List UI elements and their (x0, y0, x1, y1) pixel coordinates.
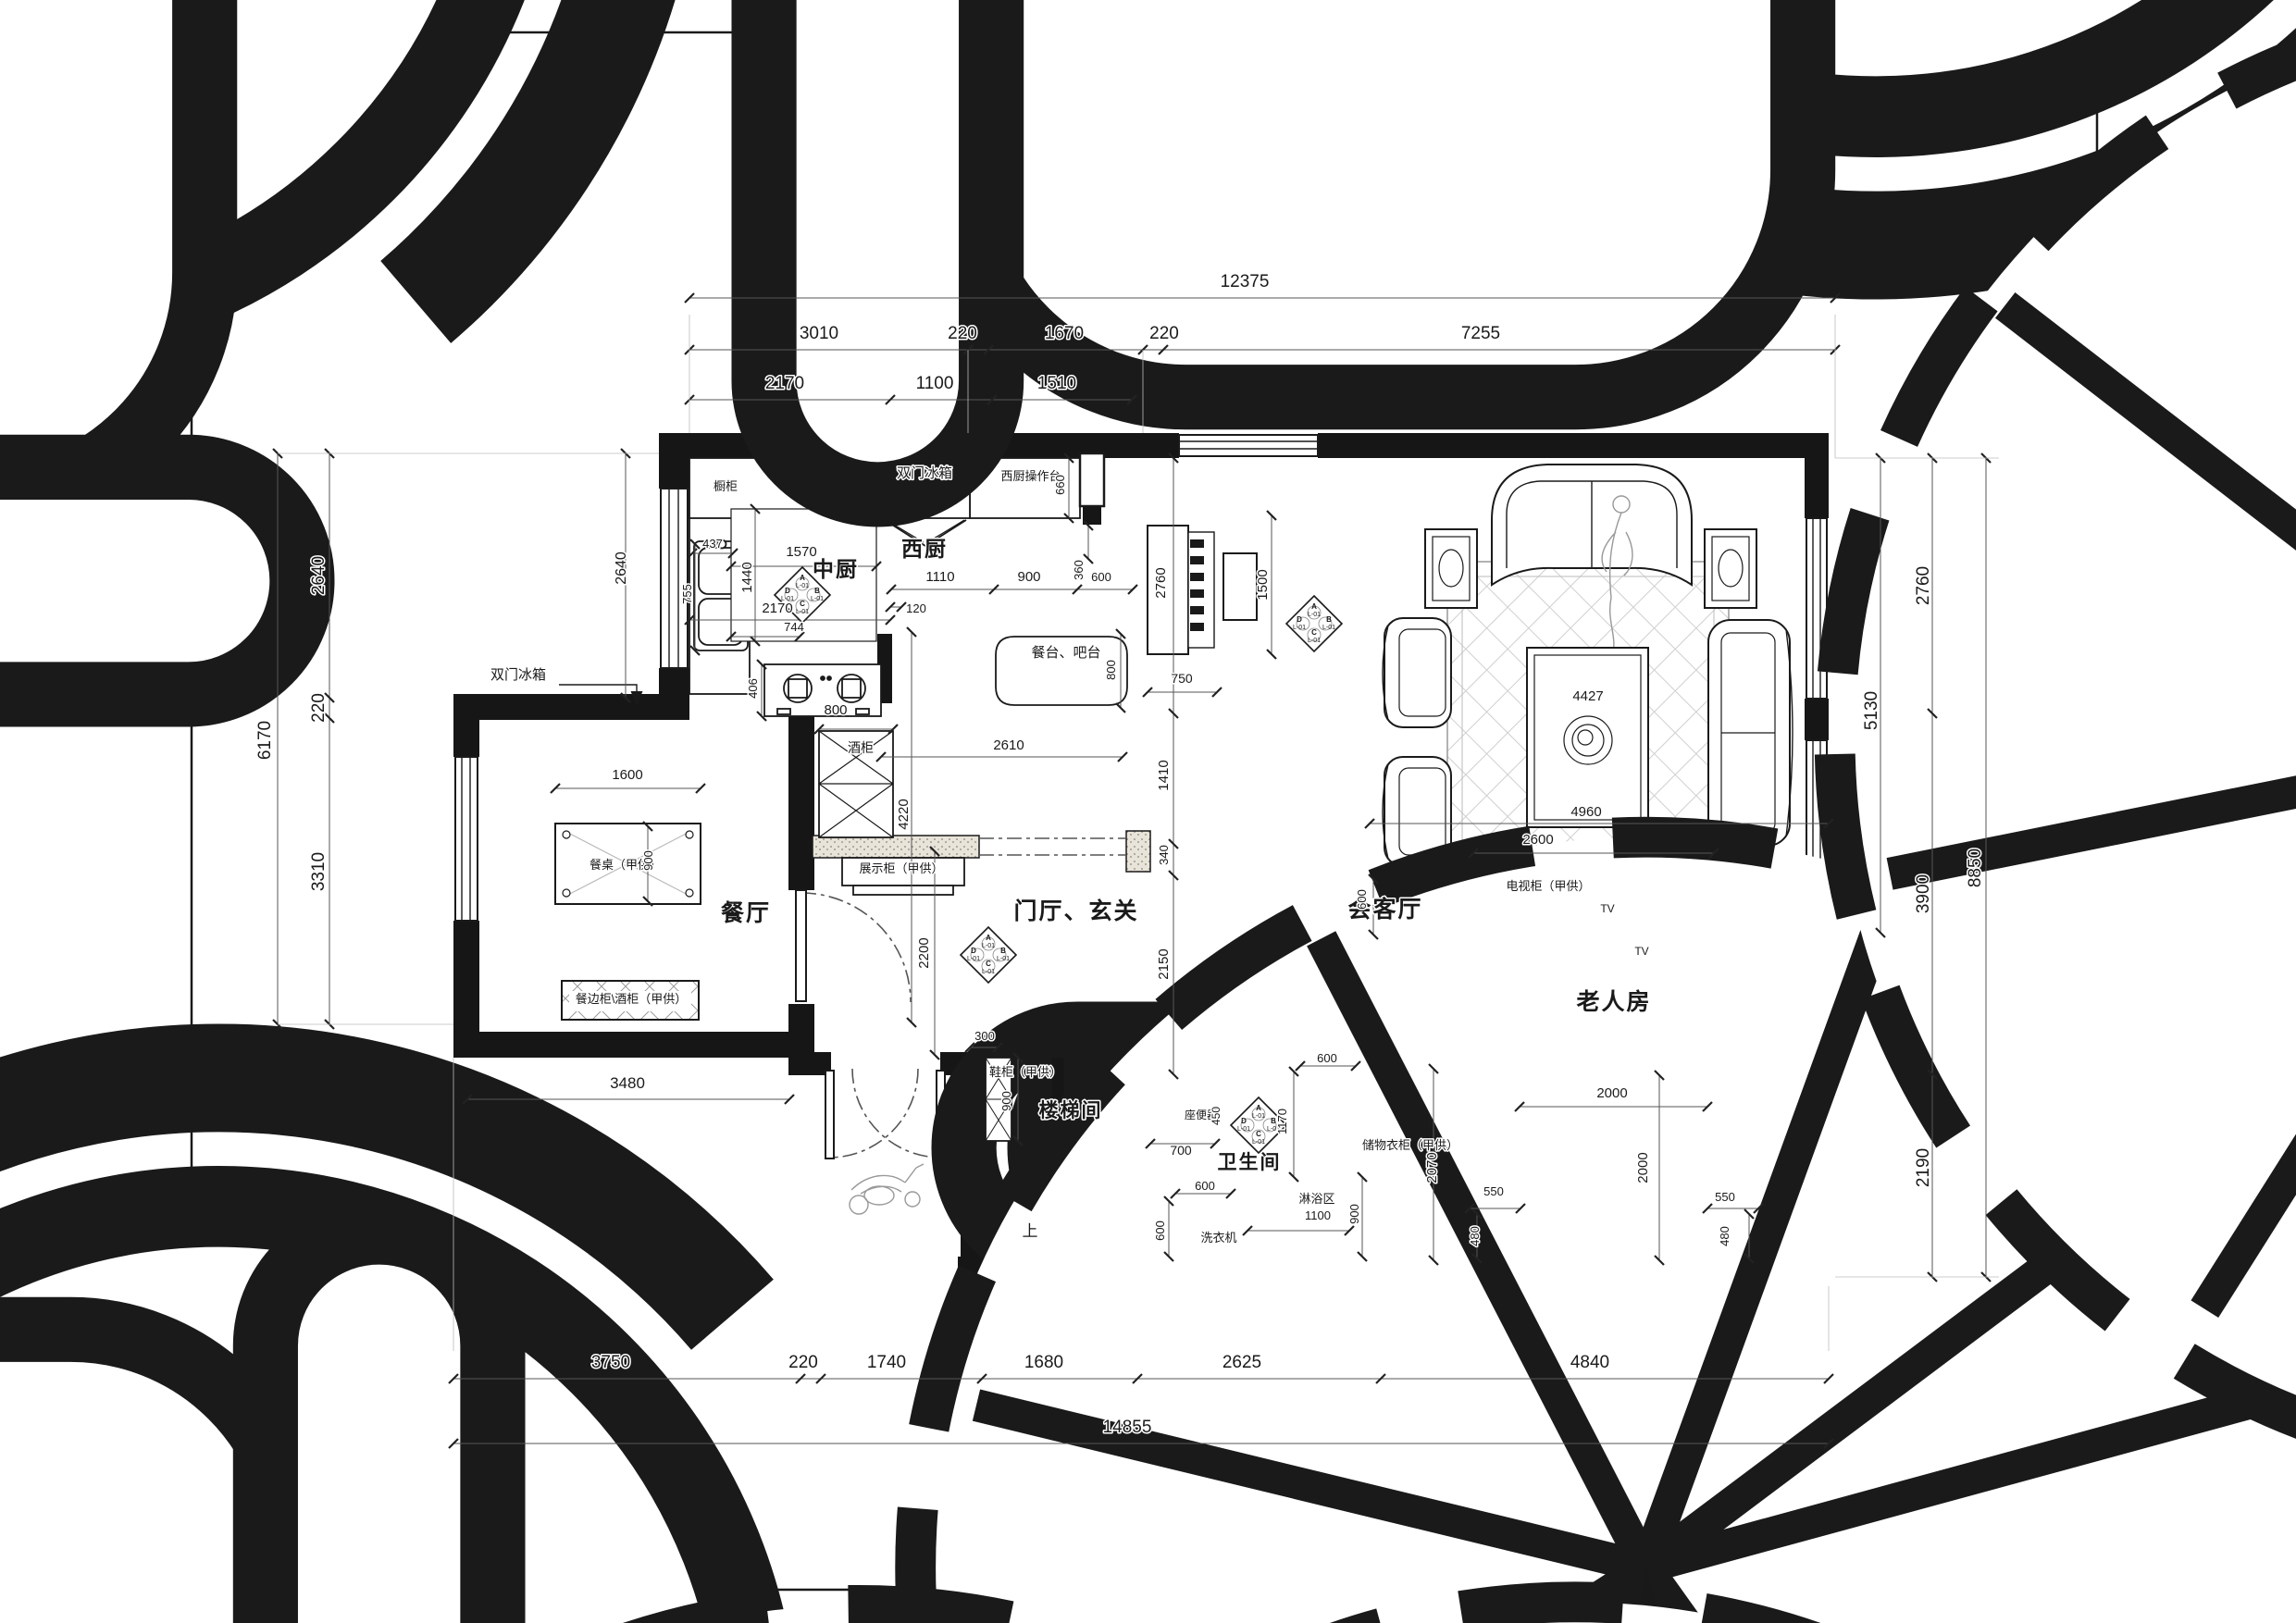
dim-label: 750 (1171, 671, 1193, 686)
armchair (1383, 618, 1451, 727)
dim-label: 1170 (1275, 1109, 1289, 1134)
dim-label: 5130 (1862, 691, 1881, 730)
side-table (1425, 529, 1477, 608)
furniture-label: 橱柜 (714, 479, 738, 493)
room-label: 中厨 (813, 557, 859, 581)
dim-label: 1410 (1156, 760, 1172, 790)
tag-code: L-01 (796, 609, 809, 615)
dim-label: 2625 (1222, 1353, 1261, 1372)
dim-label: 755 (680, 584, 694, 604)
dim-label: 900 (1347, 1204, 1361, 1224)
dim-label: 2170 (762, 601, 792, 616)
furniture-label: TV (1600, 902, 1614, 915)
furniture-label: 展示柜（甲供） (859, 861, 943, 875)
dining-door-leaf (796, 890, 806, 1001)
tag-code: L-01 (997, 956, 1010, 962)
tag-letter: A (1256, 1104, 1261, 1112)
furniture-label: 鞋柜（甲供） (989, 1065, 1061, 1079)
dim-label: 4427 (1572, 688, 1603, 704)
dim-label: 1100 (1305, 1208, 1331, 1222)
dim-label: 340 (1157, 845, 1171, 865)
floor-plan-svg: AL-01BL-01CL-01DL-01AL-01BL-01CL-01DL-01… (0, 0, 2296, 1623)
tag-letter: A (1311, 602, 1317, 611)
tag-code: L-01 (982, 969, 995, 975)
dim-label: 2600 (1522, 832, 1553, 848)
tag-letter: D (1297, 615, 1302, 624)
room-label: 卫生间 (1218, 1151, 1282, 1173)
furniture-label: 上 (1023, 1222, 1038, 1240)
window-living-top (1179, 435, 1318, 456)
tag-code: L-01 (1252, 1139, 1265, 1146)
window-dining-left (455, 757, 478, 921)
loveseat (1708, 620, 1793, 846)
dim-label: 4960 (1570, 804, 1601, 820)
dim-label: 550 (1483, 1184, 1504, 1198)
dim-label: 1100 (916, 374, 954, 393)
dim-label: 2000 (1596, 1085, 1627, 1101)
dim-label: 300 (974, 1029, 995, 1043)
dim-label: 8850 (1966, 849, 1985, 887)
dim-label: 800 (1104, 660, 1118, 680)
dim-label: 2190 (1914, 1148, 1933, 1187)
furniture-label: 洗衣机 (1200, 1231, 1236, 1245)
sofa-main (1492, 465, 1692, 585)
furniture-label: 淋浴区 (1298, 1192, 1334, 1206)
dim-label: 2640 (309, 556, 329, 595)
dim-label: 406 (746, 678, 760, 699)
window-kitchen-left (661, 489, 688, 668)
tag-code: L-01 (982, 943, 995, 949)
dim-label: 2760 (1914, 566, 1933, 605)
room-label: 老人房 (1576, 988, 1651, 1015)
dim-label: 437 (702, 537, 723, 551)
dim-label: 220 (788, 1353, 818, 1372)
room-label: 楼梯间 (1039, 1099, 1103, 1121)
dim-label: 600 (1317, 1051, 1337, 1065)
dim-label: 900 (1017, 569, 1040, 585)
dim-label: 900 (999, 1091, 1013, 1111)
furniture-label: TV (1634, 945, 1648, 958)
tag-letter: C (800, 600, 805, 608)
tag-letter: A (986, 934, 991, 942)
dim-label: 2640 (614, 551, 629, 585)
room-label: 西厨 (901, 537, 948, 561)
tag-letter: D (971, 947, 976, 955)
dim-label: 1600 (612, 767, 642, 783)
dim-label: 1680 (1024, 1353, 1063, 1372)
dim-label: 2070 (1424, 1152, 1440, 1183)
dim-label: 3480 (610, 1074, 645, 1092)
tag-code: L-01 (796, 583, 809, 589)
room-label: 餐厅 (721, 900, 771, 926)
dim-label: 7255 (1461, 324, 1500, 343)
dim-label: 480 (1718, 1226, 1731, 1246)
entry-door-left-leaf (825, 1071, 834, 1158)
dim-label: 12375 (1221, 272, 1270, 291)
dim-label: 1110 (925, 569, 954, 585)
dim-label: 900 (641, 850, 655, 871)
tag-code: L-01 (1293, 625, 1306, 631)
dim-label: 450 (1210, 1107, 1222, 1125)
column (1080, 453, 1104, 506)
tag-code: L-01 (1322, 625, 1335, 631)
furniture-label: 餐台、吧台 (1031, 645, 1100, 661)
dim-label: 1500 (1255, 569, 1271, 600)
dim-label: 2760 (1153, 567, 1169, 598)
dim-label: 2150 (1156, 948, 1172, 979)
dim-label: 3900 (1914, 874, 1933, 913)
dim-label: 1440 (739, 562, 755, 592)
coffee-table (1527, 648, 1648, 827)
furniture-label: 酒柜 (848, 740, 874, 755)
furniture-label: 双门冰箱 (490, 667, 546, 683)
drawing-sheet: AL-01BL-01CL-01DL-01AL-01BL-01CL-01DL-01… (0, 0, 2296, 1623)
tag-code: L-01 (1252, 1113, 1265, 1120)
furniture-label: 西厨操作台 (1000, 469, 1061, 483)
dim-label: 4220 (896, 799, 912, 829)
tag-letter: A (800, 574, 805, 582)
tag-letter: D (1241, 1117, 1247, 1125)
dim-label: 2000 (1635, 1152, 1651, 1183)
dim-label: 220 (948, 324, 977, 343)
dim-label: 800 (824, 702, 847, 718)
side-table (1705, 529, 1756, 608)
dim-label: 120 (906, 601, 926, 615)
tag-code: L-01 (811, 596, 824, 602)
dim-label: 220 (309, 693, 329, 723)
tag-code: L-01 (1308, 638, 1321, 644)
room-label: 门厅、玄关 (1013, 898, 1138, 924)
dim-label: 6170 (255, 721, 275, 760)
furniture-label: 储物衣柜（甲供） (1362, 1138, 1458, 1152)
dim-label: 550 (1715, 1190, 1735, 1204)
dim-label: 220 (1149, 324, 1179, 343)
furniture-label: 电视柜（甲供） (1506, 879, 1590, 893)
tag-letter: B (814, 587, 820, 595)
dim-label: 3010 (800, 324, 838, 343)
tag-code: L-01 (1308, 612, 1321, 618)
tag-code: L-01 (967, 956, 980, 962)
dim-label: 3750 (591, 1353, 630, 1372)
dim-label: 2200 (916, 937, 932, 968)
dim-label: 700 (1170, 1143, 1192, 1158)
dim-label: 480 (1468, 1226, 1482, 1246)
dim-label: 2170 (765, 374, 804, 393)
tag-letter: C (986, 960, 991, 968)
tag-letter: D (785, 587, 790, 595)
dim-label: 3310 (309, 852, 329, 891)
dim-label: 1740 (867, 1353, 906, 1372)
dim-label: 4840 (1570, 1353, 1609, 1372)
dim-label: 360 (1072, 560, 1086, 580)
dim-label: 600 (1195, 1179, 1215, 1193)
tag-letter: C (1311, 628, 1317, 637)
tag-letter: B (1326, 615, 1332, 624)
dim-label: 1510 (1037, 374, 1076, 393)
furniture-label: 双门冰箱 (897, 465, 952, 481)
furniture-label: 餐边柜\酒柜（甲供） (576, 992, 688, 1006)
dim-label: 1670 (1045, 324, 1084, 343)
dim-label: 600 (1355, 889, 1369, 910)
dim-label: 2610 (993, 737, 1024, 753)
dim-label: 14855 (1103, 1418, 1152, 1437)
dim-label: 744 (784, 620, 804, 634)
dim-label: 600 (1091, 570, 1111, 584)
tag-letter: B (1000, 947, 1006, 955)
dim-label: 660 (1053, 475, 1067, 495)
dim-label: 1570 (786, 544, 816, 560)
piano-bench (1223, 553, 1257, 620)
dim-label: 600 (1153, 1220, 1167, 1241)
tag-code: L-01 (1237, 1126, 1250, 1133)
tag-letter: C (1256, 1130, 1261, 1138)
gas-stove (764, 664, 881, 716)
